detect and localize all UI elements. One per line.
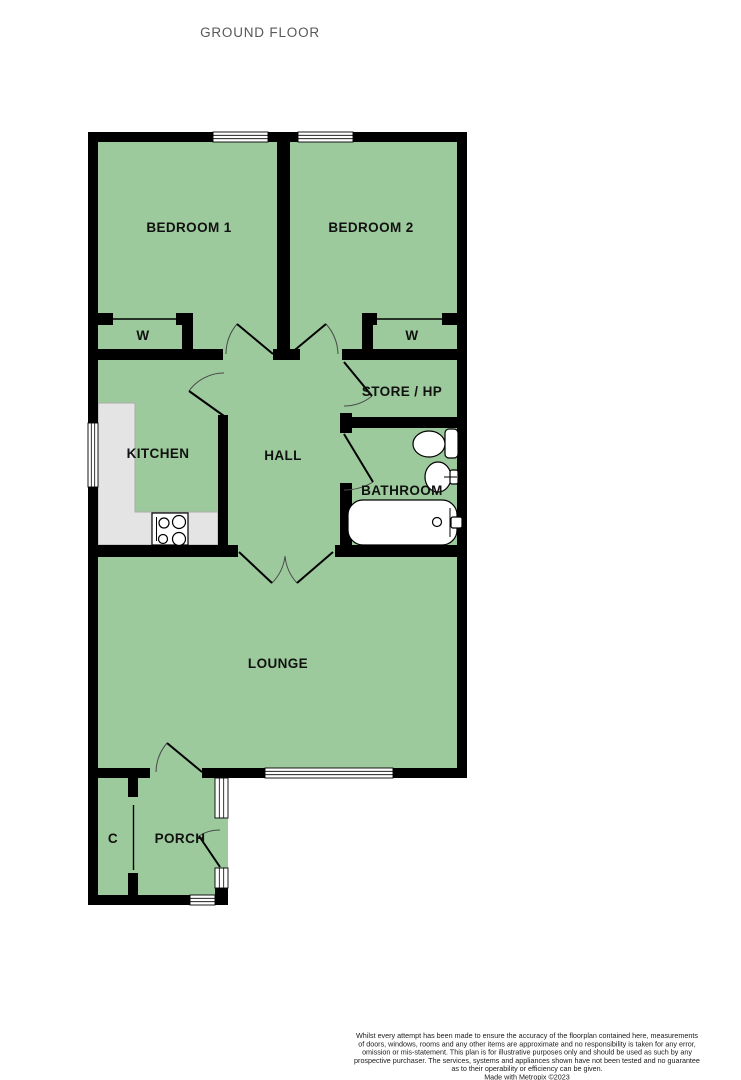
wall-lounge-bottom-b — [202, 768, 265, 778]
window-porch-sidelight-bottom — [215, 868, 228, 888]
wall-kitchen-right — [218, 415, 228, 557]
wardrobe2-label: W — [405, 328, 418, 343]
wall-store-bottom — [340, 417, 467, 428]
page-title: GROUND FLOOR — [200, 25, 320, 40]
wall-lounge-bottom-a — [98, 768, 150, 778]
wall-mid-right — [342, 349, 467, 360]
made-with-line: Made with Metropix ©2023 — [484, 1073, 570, 1080]
wall-divider-foot — [273, 349, 300, 360]
toilet-icon — [413, 429, 458, 458]
wall-wardrobe2-side — [362, 313, 373, 349]
wall-wardrobe1-stub-left — [98, 313, 113, 325]
kitchen-label: KITCHEN — [127, 446, 190, 461]
porch-label: PORCH — [155, 831, 206, 846]
store-label: STORE / HP — [362, 384, 442, 399]
wall-left — [88, 132, 98, 905]
floorplan-svg: GROUND FLOOR — [0, 0, 741, 1080]
wall-wardrobe2-stub-right — [442, 313, 457, 325]
window-kitchen — [88, 423, 98, 487]
floorplan-page: GROUND FLOOR — [0, 0, 741, 1080]
window-lounge — [265, 768, 393, 778]
porch-door-gap-fill — [150, 768, 202, 778]
cupboard-label: C — [108, 831, 118, 846]
wall-porch-partition-top — [128, 778, 138, 797]
bathroom-label: BATHROOM — [361, 483, 443, 498]
window-porch-bottom — [190, 895, 215, 905]
wall-store-bath-stub — [340, 413, 352, 433]
wall-porch-partition-bottom — [128, 873, 138, 895]
window-bedroom2 — [298, 132, 353, 142]
wall-bath-lounge — [335, 545, 467, 557]
wall-lounge-bottom-c — [393, 768, 457, 778]
wall-bedroom-divider — [277, 132, 290, 349]
wall-kitchen-lounge — [88, 545, 238, 557]
wall-mid-left — [88, 349, 223, 360]
bedroom2-label: BEDROOM 2 — [328, 220, 413, 235]
wardrobe1-label: W — [136, 328, 149, 343]
wall-porch-corner — [215, 888, 228, 905]
hob-icon — [152, 513, 188, 546]
bedroom1-label: BEDROOM 1 — [146, 220, 231, 235]
disclaimer: Whilst every attempt has been made to en… — [354, 1031, 700, 1080]
wall-right — [457, 132, 467, 778]
window-bedroom1 — [213, 132, 268, 142]
hall-label: HALL — [264, 448, 302, 463]
wall-porch-bottom — [88, 895, 190, 905]
lounge-label: LOUNGE — [248, 656, 308, 671]
bathtub-icon — [348, 500, 462, 545]
wall-wardrobe1-side — [182, 313, 193, 349]
window-porch-sidelight-top — [215, 778, 228, 818]
